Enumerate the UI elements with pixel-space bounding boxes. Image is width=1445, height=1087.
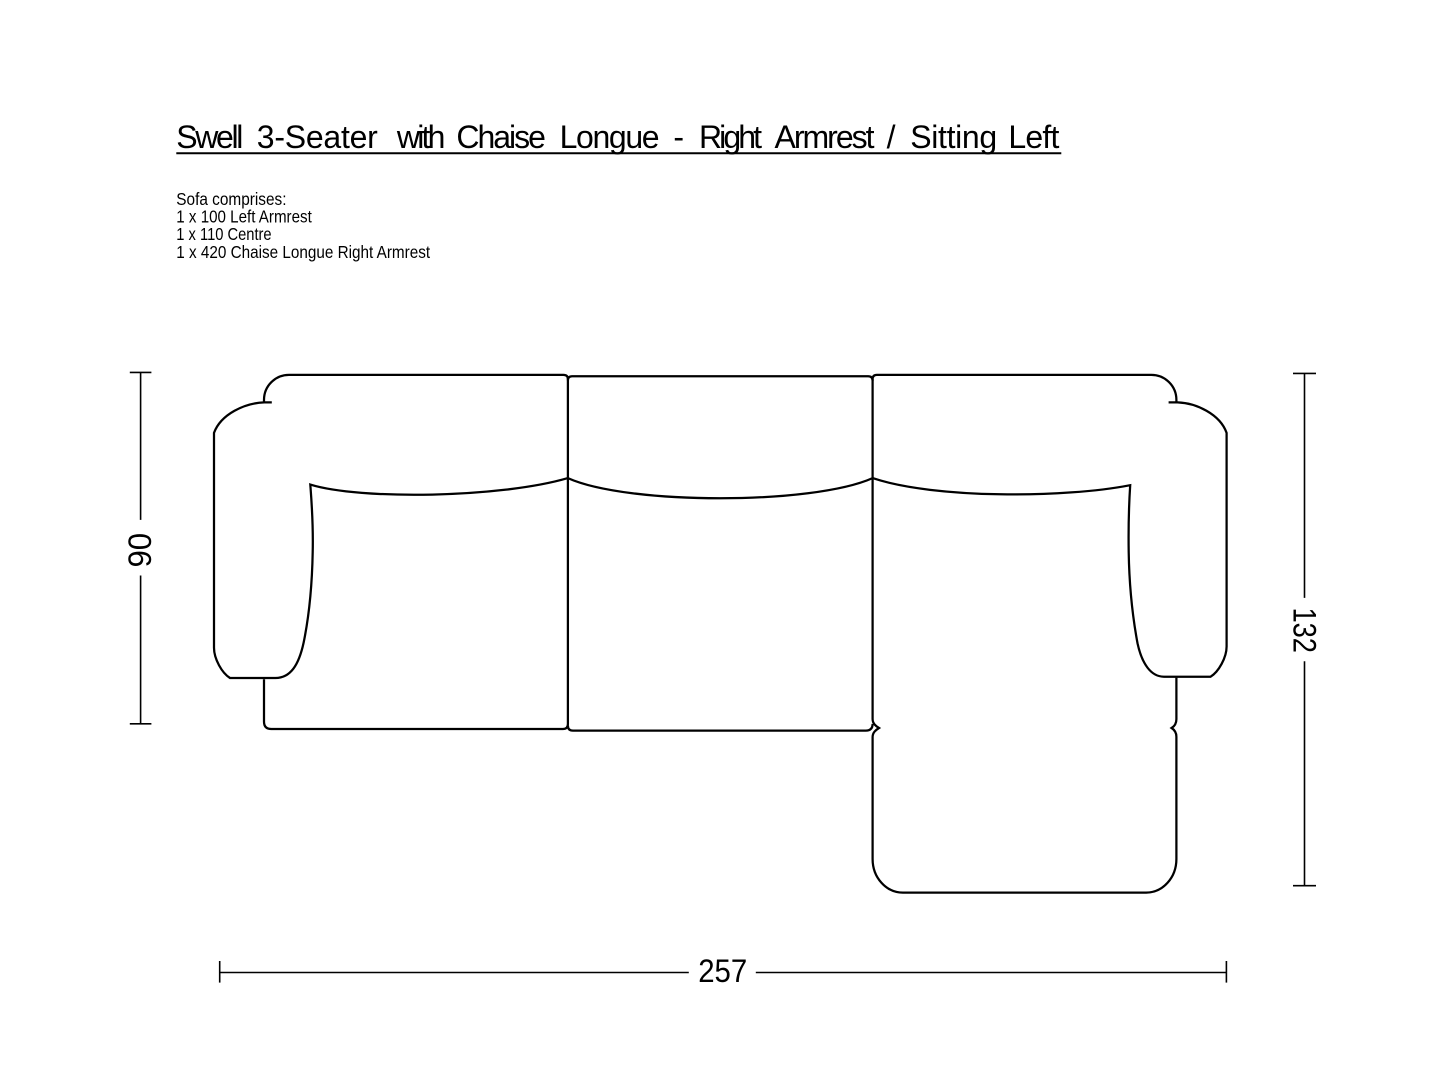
- svg-text:257: 257: [698, 953, 747, 989]
- svg-text:90: 90: [122, 533, 158, 568]
- svg-text:1 x 110 Centre: 1 x 110 Centre: [176, 224, 271, 244]
- svg-text:Swell3-SeaterwithChaiseLongue-: Swell3-SeaterwithChaiseLongue-RightArmre…: [176, 119, 1059, 155]
- svg-text:1 x 420 Chaise Longue Right Ar: 1 x 420 Chaise Longue Right Armrest: [176, 242, 430, 262]
- svg-text:132: 132: [1286, 607, 1322, 653]
